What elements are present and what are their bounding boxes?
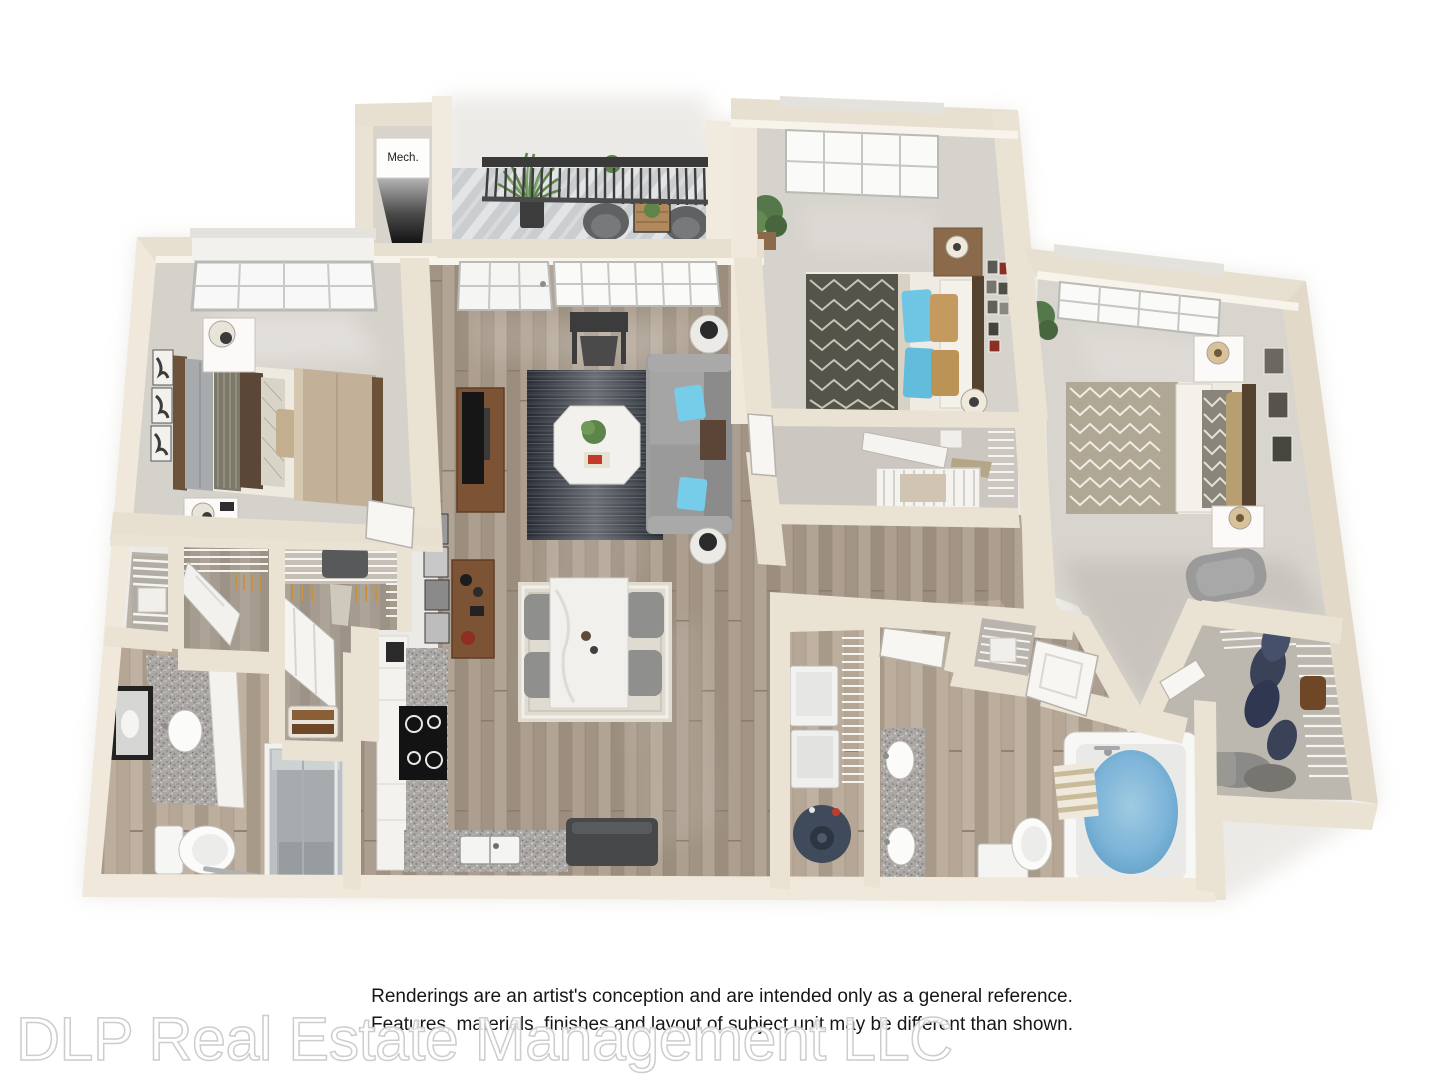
- svg-text:Mech.: Mech.: [387, 152, 418, 164]
- svg-text:Renderings are an artist's con: Renderings are an artist's conception an…: [371, 986, 1073, 1007]
- svg-text:DLP Real Estate Management LLC: DLP Real Estate Management LLC: [16, 1005, 953, 1073]
